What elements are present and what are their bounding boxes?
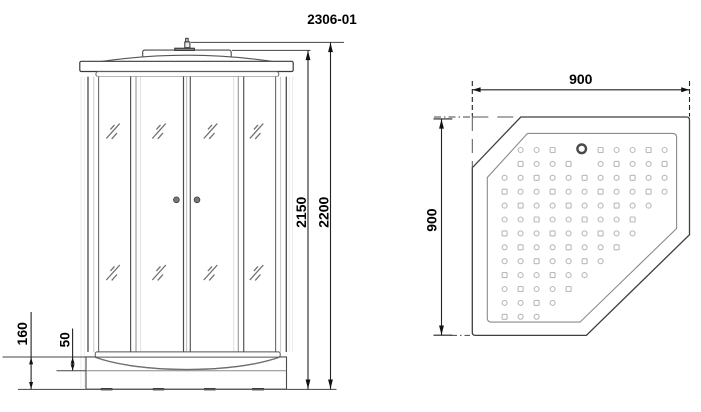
svg-text:900: 900	[424, 208, 440, 232]
svg-text:2150: 2150	[293, 197, 309, 228]
svg-text:2200: 2200	[315, 197, 331, 228]
svg-text:160: 160	[14, 322, 30, 346]
svg-text:900: 900	[569, 71, 593, 87]
svg-text:50: 50	[58, 332, 73, 347]
svg-text:2306-01: 2306-01	[307, 12, 357, 27]
